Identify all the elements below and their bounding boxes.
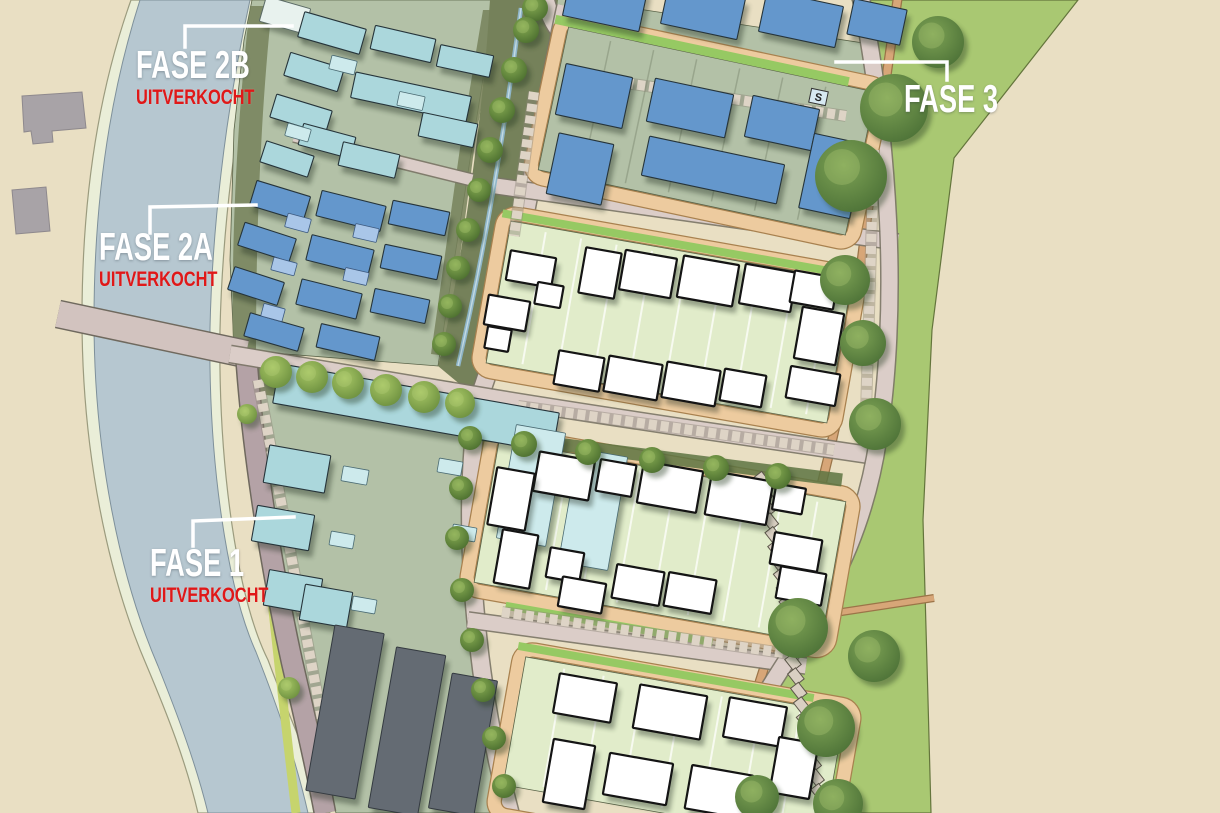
existing-building [12, 187, 50, 234]
building-white1 [553, 350, 604, 391]
phase-label-fase2a[interactable]: FASE 2A UITVERKOCHT [99, 228, 245, 289]
tree-highlight [470, 181, 482, 193]
phase-label-fase2b[interactable]: FASE 2B UITVERKOCHT [136, 46, 282, 107]
tree-highlight [461, 429, 473, 441]
tree-highlight [826, 261, 851, 286]
building-fase1 [299, 584, 353, 628]
tree-highlight [453, 581, 465, 593]
masterplan-map[interactable]: S [0, 0, 1220, 813]
building-white1 [739, 264, 797, 312]
tree-highlight [480, 140, 493, 153]
phase-status: UITVERKOCHT [150, 585, 268, 606]
tree-highlight [336, 371, 352, 387]
building-white1 [794, 307, 844, 366]
tree-highlight [264, 360, 280, 376]
tree-highlight [463, 631, 475, 643]
building-white1 [661, 362, 720, 407]
building-white2 [494, 529, 539, 588]
tree-highlight [412, 385, 428, 401]
tree-highlight [504, 60, 517, 73]
phase-label-fase3[interactable]: FASE 3 [904, 80, 1025, 115]
building-white1 [534, 282, 563, 308]
building-white2 [770, 532, 823, 572]
building-white1 [720, 369, 767, 408]
building-white3 [723, 697, 787, 746]
building-white2 [663, 572, 716, 614]
tree-highlight [578, 442, 591, 455]
tree-highlight [459, 221, 471, 233]
phase-title: FASE 2A [99, 228, 213, 267]
building-fase3 [546, 133, 614, 205]
tree-highlight [869, 83, 903, 117]
tree-highlight [449, 259, 461, 271]
phase-status: UITVERKOCHT [136, 87, 256, 108]
tree-highlight [452, 479, 464, 491]
tree-highlight [642, 450, 655, 463]
tree-highlight [514, 434, 527, 447]
tree-highlight [919, 23, 945, 49]
building-white3 [553, 673, 617, 722]
tree-highlight [855, 637, 881, 663]
building-white1 [578, 247, 621, 299]
tree-highlight [374, 378, 390, 394]
tree-highlight [240, 407, 250, 417]
phase-title: FASE 2B [136, 46, 250, 85]
tree-highlight [824, 149, 860, 185]
tree-highlight [492, 100, 505, 113]
building-white2 [558, 576, 607, 613]
tree-highlight [819, 785, 844, 810]
tree-highlight [300, 365, 316, 381]
building-white1 [677, 255, 739, 306]
phase-label-fase1[interactable]: FASE 1 UITVERKOCHT [150, 544, 294, 605]
tree-highlight [741, 781, 763, 803]
tree-highlight [441, 297, 453, 309]
phase-title: FASE 3 [904, 80, 998, 119]
tree-highlight [485, 729, 497, 741]
building-white1 [506, 250, 557, 288]
tree-highlight [474, 681, 486, 693]
tree-highlight [768, 466, 781, 479]
building-white1 [619, 250, 677, 298]
tree-highlight [706, 458, 719, 471]
tree-highlight [449, 392, 464, 407]
building-white1 [484, 326, 511, 352]
phase-title: FASE 1 [150, 544, 263, 583]
tree-highlight [495, 777, 507, 789]
tree-highlight [804, 706, 833, 735]
tree-highlight [435, 335, 447, 347]
tree-highlight [281, 680, 292, 691]
tree-highlight [856, 405, 882, 431]
tree-highlight [516, 20, 529, 33]
tree-highlight [448, 529, 460, 541]
building-white1 [603, 356, 662, 401]
tree-highlight [846, 326, 869, 349]
site-plan: S FASE 2B UITVERKOCHT FASE 2A UITVERKOCH… [0, 0, 1220, 813]
building-white2 [611, 564, 664, 606]
tree-highlight [776, 606, 806, 636]
phase-status: UITVERKOCHT [99, 269, 219, 290]
